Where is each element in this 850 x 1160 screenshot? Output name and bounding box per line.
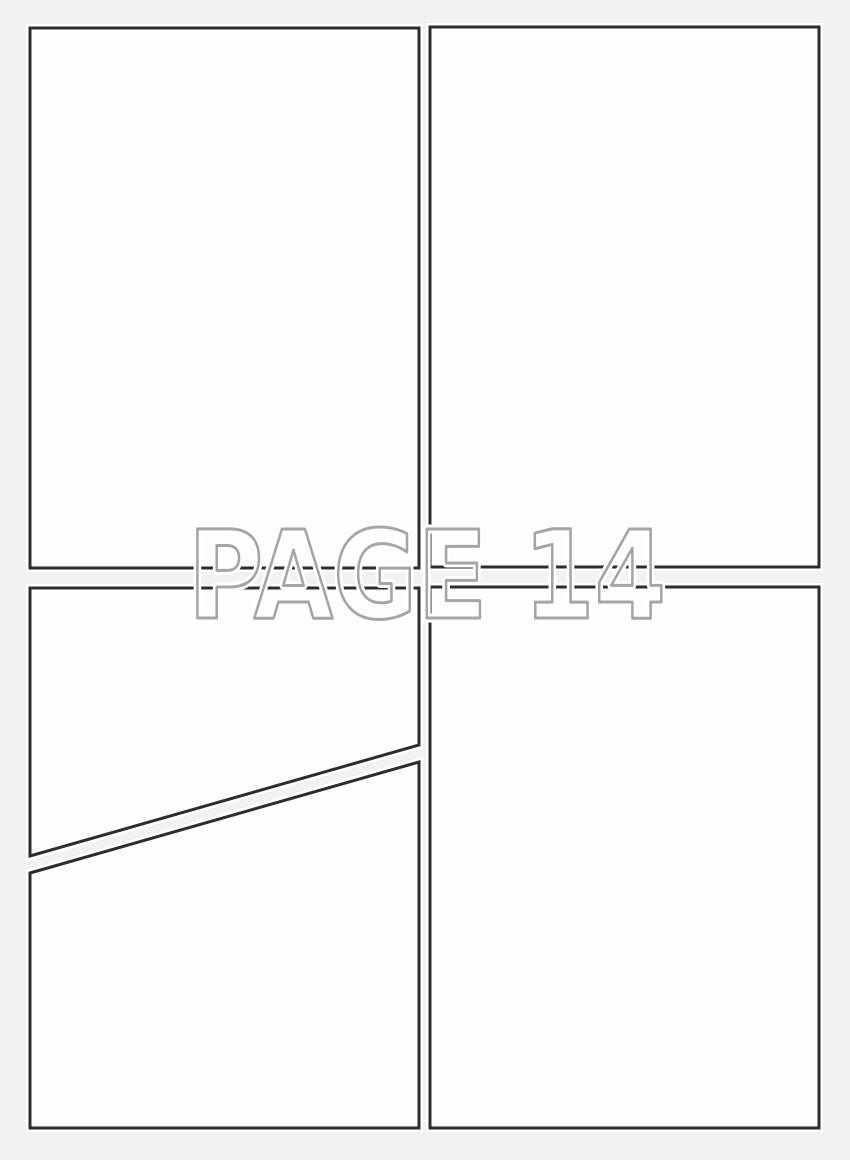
panel-top-right	[430, 27, 819, 567]
panel-top-left-frame	[30, 28, 419, 568]
panel-bottom-right-frame	[430, 587, 819, 1128]
panel-top-left	[30, 28, 419, 568]
comic-page-canvas: PAGE 14 PAGE 14	[0, 0, 850, 1160]
panel-bottom-right	[430, 587, 819, 1128]
page-watermark: PAGE 14 PAGE 14	[188, 505, 666, 647]
watermark-outline-text: PAGE 14	[188, 505, 666, 647]
panel-top-right-frame	[430, 27, 819, 567]
